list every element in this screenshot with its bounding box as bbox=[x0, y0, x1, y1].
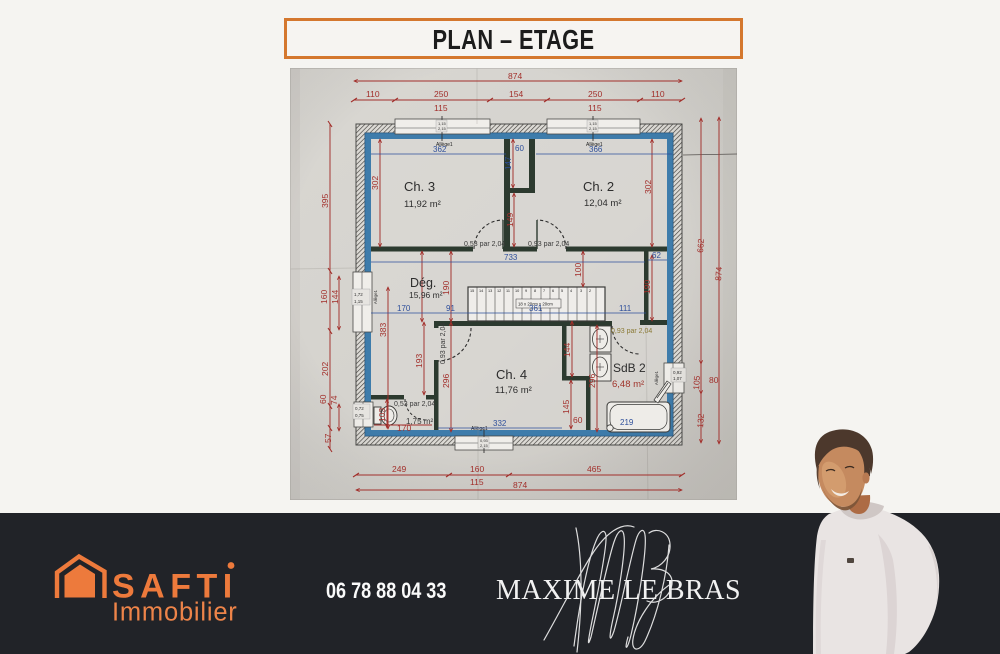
svg-text:193: 193 bbox=[414, 354, 424, 368]
svg-text:110: 110 bbox=[651, 89, 665, 99]
svg-text:733: 733 bbox=[504, 253, 518, 262]
svg-text:302: 302 bbox=[643, 180, 653, 194]
svg-text:12,04 m²: 12,04 m² bbox=[584, 198, 622, 209]
svg-text:11,92 m²: 11,92 m² bbox=[404, 199, 441, 210]
svg-text:Immobilier: Immobilier bbox=[112, 599, 238, 627]
svg-text:SdB 2: SdB 2 bbox=[613, 361, 646, 375]
svg-text:361: 361 bbox=[529, 304, 543, 313]
svg-text:3: 3 bbox=[580, 289, 582, 293]
svg-text:14: 14 bbox=[479, 289, 483, 293]
svg-text:12: 12 bbox=[497, 289, 501, 293]
svg-text:110: 110 bbox=[366, 89, 380, 99]
svg-text:60: 60 bbox=[573, 415, 583, 425]
svg-text:144: 144 bbox=[562, 343, 572, 357]
svg-text:91: 91 bbox=[446, 304, 455, 313]
svg-text:2: 2 bbox=[589, 289, 591, 293]
svg-text:80: 80 bbox=[709, 375, 719, 385]
svg-text:249: 249 bbox=[392, 464, 406, 474]
svg-text:250: 250 bbox=[588, 89, 602, 99]
svg-text:Ch. 4: Ch. 4 bbox=[496, 367, 527, 382]
svg-text:Dég.: Dég. bbox=[410, 276, 436, 290]
svg-text:383: 383 bbox=[378, 323, 388, 337]
svg-text:144: 144 bbox=[330, 290, 340, 304]
svg-text:0,93 par 2,04: 0,93 par 2,04 bbox=[611, 328, 652, 335]
svg-text:60: 60 bbox=[318, 394, 328, 404]
svg-text:57: 57 bbox=[323, 433, 333, 443]
svg-text:15: 15 bbox=[470, 289, 474, 293]
svg-text:202: 202 bbox=[320, 362, 330, 376]
svg-text:105: 105 bbox=[691, 375, 702, 390]
svg-text:0,53 par 2,04: 0,53 par 2,04 bbox=[394, 401, 435, 408]
svg-text:147: 147 bbox=[504, 156, 513, 170]
svg-text:11: 11 bbox=[506, 289, 510, 293]
svg-text:296: 296 bbox=[441, 374, 451, 388]
svg-text:874: 874 bbox=[508, 71, 522, 81]
svg-text:4: 4 bbox=[570, 289, 572, 293]
svg-text:465: 465 bbox=[587, 464, 601, 474]
svg-text:874: 874 bbox=[713, 266, 724, 281]
svg-text:7: 7 bbox=[543, 289, 545, 293]
svg-text:160: 160 bbox=[470, 464, 484, 474]
svg-text:115: 115 bbox=[588, 103, 602, 113]
svg-text:115: 115 bbox=[470, 477, 484, 487]
svg-text:145: 145 bbox=[561, 400, 571, 414]
svg-text:6: 6 bbox=[552, 289, 554, 293]
svg-text:170: 170 bbox=[397, 304, 411, 313]
svg-text:362: 362 bbox=[433, 145, 447, 154]
svg-text:9: 9 bbox=[525, 289, 527, 293]
svg-text:0,53 par 2,04: 0,53 par 2,04 bbox=[464, 241, 505, 248]
svg-text:15,96 m²: 15,96 m² bbox=[409, 290, 443, 300]
svg-text:154: 154 bbox=[509, 89, 523, 99]
svg-text:219: 219 bbox=[620, 418, 634, 427]
svg-text:115: 115 bbox=[434, 103, 448, 113]
svg-text:302: 302 bbox=[370, 176, 380, 190]
svg-text:103: 103 bbox=[377, 408, 387, 422]
svg-text:74: 74 bbox=[329, 395, 339, 405]
svg-text:Ch. 2: Ch. 2 bbox=[583, 179, 614, 194]
svg-text:10: 10 bbox=[515, 289, 519, 293]
svg-text:395: 395 bbox=[320, 194, 330, 208]
svg-text:250: 250 bbox=[434, 89, 448, 99]
svg-text:160: 160 bbox=[319, 290, 329, 304]
svg-text:332: 332 bbox=[493, 419, 507, 428]
svg-text:662: 662 bbox=[695, 238, 706, 253]
svg-text:Ch. 3: Ch. 3 bbox=[404, 179, 435, 194]
svg-text:62: 62 bbox=[652, 251, 661, 260]
svg-text:13: 13 bbox=[488, 289, 492, 293]
svg-text:0,93 par 2,04: 0,93 par 2,04 bbox=[440, 323, 447, 364]
svg-text:1,75 m²: 1,75 m² bbox=[406, 417, 433, 426]
svg-text:366: 366 bbox=[589, 145, 603, 154]
svg-text:100: 100 bbox=[573, 263, 583, 277]
svg-text:8: 8 bbox=[534, 289, 536, 293]
svg-text:874: 874 bbox=[513, 480, 527, 490]
svg-text:5: 5 bbox=[561, 289, 563, 293]
svg-text:296: 296 bbox=[587, 374, 597, 388]
svg-text:111: 111 bbox=[619, 304, 632, 313]
svg-text:6,48 m²: 6,48 m² bbox=[612, 379, 644, 390]
svg-text:0,93 par 2,04: 0,93 par 2,04 bbox=[528, 241, 569, 248]
svg-text:149: 149 bbox=[505, 213, 515, 227]
svg-text:190: 190 bbox=[642, 280, 652, 294]
svg-text:132: 132 bbox=[695, 413, 706, 428]
svg-text:60: 60 bbox=[515, 144, 524, 153]
svg-text:11,76 m²: 11,76 m² bbox=[495, 385, 532, 396]
